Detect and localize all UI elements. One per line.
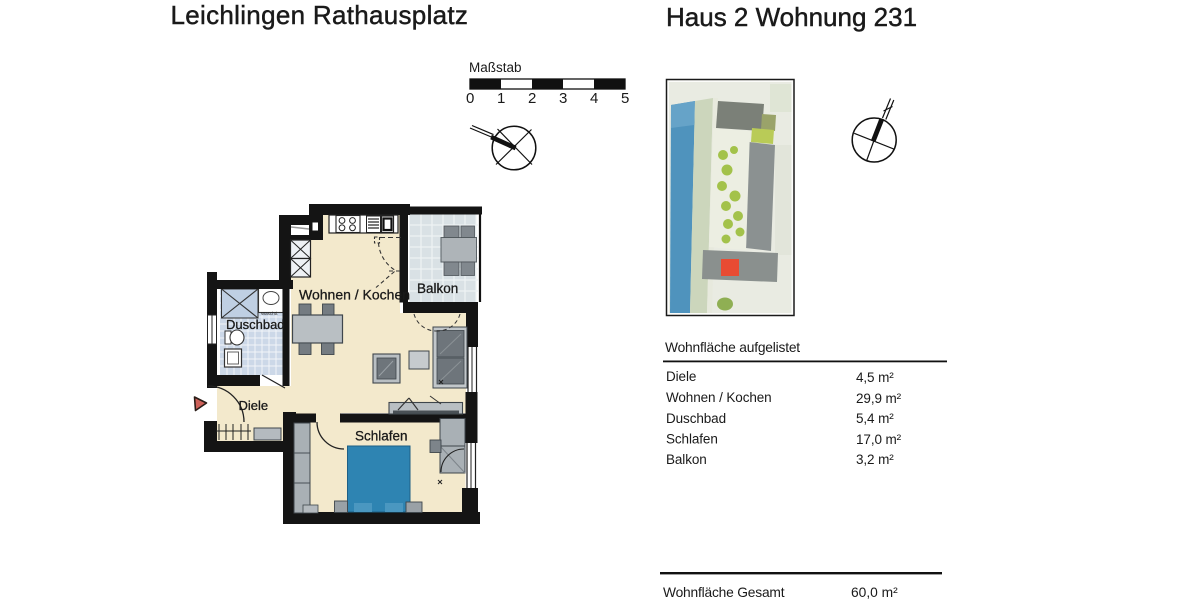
svg-text:Schlafen: Schlafen: [355, 429, 408, 444]
svg-text:Duschbad: Duschbad: [226, 317, 285, 332]
svg-text:Balkon: Balkon: [417, 281, 458, 296]
svg-text:Wohnen / Kochen: Wohnen / Kochen: [666, 390, 772, 405]
svg-text:Wohnen / Kochen: Wohnen / Kochen: [299, 287, 410, 303]
svg-text:Waschti.: Waschti.: [261, 311, 278, 316]
svg-text:Balkon: Balkon: [666, 452, 707, 467]
svg-text:5,4 m²: 5,4 m²: [856, 411, 894, 426]
svg-text:3: 3: [559, 90, 567, 107]
svg-text:4,5 m²: 4,5 m²: [856, 370, 894, 385]
svg-text:Wohnfläche aufgelistet: Wohnfläche aufgelistet: [665, 340, 800, 355]
svg-text:Duschbad: Duschbad: [666, 411, 726, 426]
svg-text:1: 1: [497, 90, 505, 107]
svg-text:Schlafen: Schlafen: [666, 432, 718, 447]
svg-text:60,0 m²: 60,0 m²: [851, 585, 898, 600]
svg-text:Diele: Diele: [239, 398, 269, 413]
svg-text:Haus 2 Wohnung 231: Haus 2 Wohnung 231: [666, 2, 917, 32]
svg-text:4: 4: [590, 90, 598, 107]
svg-text:29,9 m²: 29,9 m²: [856, 391, 902, 406]
svg-text:0: 0: [466, 90, 474, 107]
svg-text:Maßstab: Maßstab: [469, 60, 522, 75]
svg-text:Leichlingen Rathausplatz: Leichlingen Rathausplatz: [171, 0, 469, 30]
svg-text:Wohnfläche Gesamt: Wohnfläche Gesamt: [663, 585, 785, 600]
svg-text:Diele: Diele: [666, 369, 696, 384]
svg-text:2: 2: [528, 90, 536, 107]
svg-text:3,2 m²: 3,2 m²: [856, 452, 894, 467]
svg-text:17,0 m²: 17,0 m²: [856, 432, 902, 447]
svg-text:5: 5: [621, 90, 629, 107]
